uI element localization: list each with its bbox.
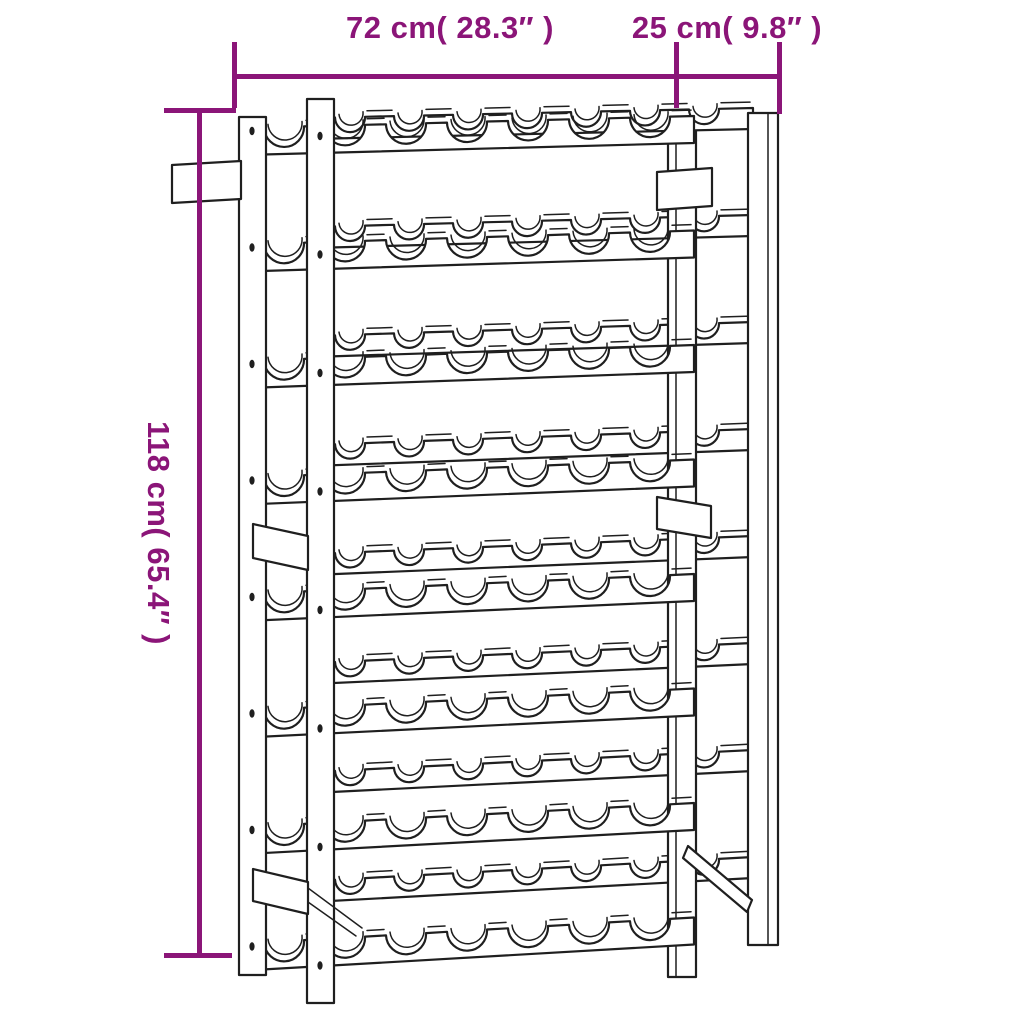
scallop-depth-line bbox=[268, 122, 302, 141]
rail-top-edge bbox=[367, 110, 392, 111]
rail-top-edge bbox=[544, 753, 569, 754]
screw-hole bbox=[317, 487, 322, 495]
rail-top-edge bbox=[550, 113, 567, 114]
rail-top-edge bbox=[550, 919, 567, 920]
scallop-depth-line bbox=[634, 570, 668, 589]
rail-top-edge bbox=[611, 227, 628, 228]
scallop-depth-line bbox=[575, 537, 599, 551]
scallop-depth-line bbox=[575, 322, 599, 335]
scallop-depth-line bbox=[575, 753, 599, 767]
scallop-depth-line bbox=[634, 685, 668, 704]
scallop-depth-line bbox=[268, 703, 302, 722]
scallop-depth-line bbox=[339, 329, 363, 342]
scallop-depth-line bbox=[573, 458, 607, 477]
scallop-depth-line bbox=[457, 650, 481, 664]
scallop-depth-line bbox=[575, 107, 599, 120]
rail-top-edge bbox=[367, 219, 392, 220]
rail-top-edge bbox=[603, 750, 628, 751]
scallop-depth-line bbox=[634, 799, 668, 818]
scallop-depth-line bbox=[634, 642, 658, 656]
scallop-depth-line bbox=[268, 935, 302, 954]
rail-top-edge bbox=[550, 459, 567, 460]
screw-hole bbox=[249, 476, 254, 484]
scallop-depth-line bbox=[516, 540, 540, 554]
rail-top-edge bbox=[603, 535, 628, 536]
scallop-depth-line bbox=[398, 653, 422, 667]
screw-hole bbox=[249, 360, 254, 368]
rail-top-edge bbox=[721, 530, 750, 531]
rail-top-edge bbox=[550, 229, 567, 230]
scallop-depth-line bbox=[634, 750, 658, 764]
rail-top-edge bbox=[367, 350, 384, 351]
scallop-depth-line bbox=[516, 432, 540, 446]
rail-top-edge bbox=[672, 225, 691, 226]
scallop-depth-line bbox=[339, 873, 363, 887]
scallop-depth-line bbox=[634, 213, 658, 226]
rail-top-edge bbox=[544, 322, 569, 323]
screw-hole bbox=[317, 606, 322, 614]
rail-top-edge bbox=[550, 804, 567, 805]
scallop-depth-line bbox=[634, 456, 668, 475]
scallop-depth-line bbox=[575, 860, 599, 874]
rail-top-edge bbox=[428, 348, 445, 349]
rail-top-edge bbox=[489, 346, 506, 347]
scallop-depth-line bbox=[339, 112, 363, 125]
rail-top-edge bbox=[485, 540, 510, 541]
rail-top-edge bbox=[367, 762, 392, 763]
width-dimension-label: 72 cm( 28.3″ ) bbox=[346, 10, 554, 46]
scallop-depth-line bbox=[457, 109, 481, 122]
rail-top-edge bbox=[485, 756, 510, 757]
scallop-depth-line bbox=[390, 928, 424, 947]
scallop-depth-line bbox=[398, 870, 422, 884]
scallop-depth-line bbox=[339, 765, 363, 779]
screw-hole bbox=[249, 593, 254, 601]
diagram-canvas: 72 cm( 28.3″ ) 25 cm( 9.8″ ) 118 cm( 65.… bbox=[0, 0, 1024, 1024]
side-support-bracket bbox=[172, 161, 241, 203]
rail-top-edge bbox=[544, 861, 569, 862]
rail-top-edge bbox=[367, 545, 392, 546]
rail-top-edge bbox=[489, 115, 506, 116]
scallop-depth-line bbox=[693, 104, 717, 117]
screw-hole bbox=[317, 369, 322, 377]
screw-hole bbox=[317, 724, 322, 732]
rail-top-edge bbox=[611, 571, 628, 572]
scallop-depth-line bbox=[390, 465, 424, 484]
scallop-depth-line bbox=[512, 921, 546, 940]
rail-top-edge bbox=[485, 324, 510, 325]
screw-hole bbox=[317, 843, 322, 851]
rail-top-edge bbox=[489, 230, 506, 231]
scallop-depth-line bbox=[457, 434, 481, 447]
scallop-depth-line bbox=[634, 427, 658, 441]
rail-top-edge bbox=[544, 214, 569, 215]
scallop-depth-line bbox=[516, 648, 540, 662]
rail-top-edge bbox=[721, 423, 750, 424]
rail-top-edge bbox=[721, 209, 750, 210]
scallop-depth-line bbox=[512, 460, 546, 479]
rail-top-edge bbox=[426, 867, 451, 868]
screw-hole bbox=[249, 942, 254, 950]
rail-top-edge bbox=[428, 232, 445, 233]
width-dimension-tick-middle bbox=[674, 42, 679, 108]
scallop-depth-line bbox=[516, 216, 540, 229]
rail-top-edge bbox=[426, 651, 451, 652]
scallop-depth-line bbox=[457, 542, 481, 556]
rail-top-edge bbox=[721, 744, 750, 746]
scallop-depth-line bbox=[516, 756, 540, 770]
rail-top-edge bbox=[426, 542, 451, 543]
rail-top-edge bbox=[672, 683, 691, 684]
rail-top-edge bbox=[367, 118, 384, 119]
rail-top-edge bbox=[721, 851, 750, 853]
scallop-depth-line bbox=[634, 914, 668, 933]
rail-top-edge bbox=[603, 643, 628, 644]
rail-top-edge bbox=[485, 648, 510, 649]
rail-top-edge bbox=[611, 456, 628, 457]
scallop-depth-line bbox=[339, 656, 363, 670]
rail-top-edge bbox=[426, 434, 451, 435]
scallop-depth-line bbox=[573, 573, 607, 592]
scallop-depth-line bbox=[457, 867, 481, 881]
rail-top-edge bbox=[367, 466, 384, 467]
rail-top-edge bbox=[428, 464, 445, 465]
scallop-depth-line bbox=[634, 857, 658, 871]
rail-top-edge bbox=[544, 538, 569, 539]
scallop-depth-line bbox=[512, 806, 546, 825]
screw-hole bbox=[249, 826, 254, 834]
rail-top-edge bbox=[485, 864, 510, 865]
rail-top-edge bbox=[672, 110, 691, 111]
rail-top-edge bbox=[426, 109, 451, 110]
scallop-depth-line bbox=[516, 324, 540, 337]
rail-top-edge bbox=[489, 692, 506, 693]
rail-top-edge bbox=[367, 328, 392, 329]
scallop-depth-line bbox=[268, 470, 302, 489]
scallop-depth-line bbox=[573, 688, 607, 707]
screw-hole bbox=[249, 709, 254, 717]
scallop-depth-line bbox=[451, 463, 485, 482]
scallop-depth-line bbox=[575, 645, 599, 659]
scallop-depth-line bbox=[398, 545, 422, 559]
scallop-depth-line bbox=[268, 819, 302, 838]
rail-top-edge bbox=[603, 428, 628, 429]
side-support-bracket bbox=[657, 497, 711, 538]
scallop-depth-line bbox=[573, 803, 607, 822]
screw-hole bbox=[249, 127, 254, 135]
scallop-depth-line bbox=[575, 214, 599, 227]
scallop-depth-line bbox=[575, 430, 599, 444]
rail-top-edge bbox=[367, 871, 392, 872]
scallop-depth-line bbox=[573, 918, 607, 937]
scallop-depth-line bbox=[457, 326, 481, 339]
rail-top-edge bbox=[721, 637, 750, 638]
scallop-depth-line bbox=[634, 105, 658, 118]
depth-dimension-label: 25 cm( 9.8″ ) bbox=[632, 10, 822, 46]
back-left-post bbox=[307, 99, 334, 1003]
scallop-depth-line bbox=[398, 111, 422, 124]
scallop-depth-line bbox=[268, 354, 302, 373]
scallop-depth-line bbox=[516, 108, 540, 121]
rail-top-edge bbox=[550, 574, 567, 575]
screw-hole bbox=[317, 132, 322, 140]
scallop-depth-line bbox=[512, 576, 546, 595]
rail-top-edge bbox=[367, 930, 384, 931]
width-dimension-line bbox=[234, 74, 780, 79]
rail-top-edge bbox=[428, 810, 445, 811]
rail-top-edge bbox=[426, 217, 451, 218]
scallop-depth-line bbox=[339, 438, 363, 452]
rail-top-edge bbox=[428, 926, 445, 927]
scallop-depth-line bbox=[398, 436, 422, 450]
screw-hole bbox=[249, 243, 254, 251]
rail-top-edge bbox=[485, 216, 510, 217]
rail-top-edge bbox=[367, 436, 392, 437]
rail-top-edge bbox=[550, 344, 567, 345]
rail-top-edge bbox=[672, 339, 691, 340]
rail-top-edge bbox=[485, 432, 510, 433]
rail-top-edge bbox=[611, 686, 628, 687]
scallop-depth-line bbox=[512, 691, 546, 710]
scallop-depth-line bbox=[268, 587, 302, 606]
scallop-depth-line bbox=[268, 238, 302, 257]
height-dimension-cap-bottom bbox=[164, 953, 232, 958]
back-right-post bbox=[748, 113, 778, 945]
rail-top-edge bbox=[550, 689, 567, 690]
rail-top-edge bbox=[428, 695, 445, 696]
scallop-depth-line bbox=[339, 547, 363, 561]
depth-dimension-tick-right bbox=[777, 42, 782, 114]
rail-top-edge bbox=[489, 807, 506, 808]
rail-top-edge bbox=[489, 922, 506, 923]
scallop-depth-line bbox=[457, 759, 481, 773]
rail-top-edge bbox=[611, 341, 628, 342]
rail-top-edge bbox=[603, 212, 628, 213]
rail-top-edge bbox=[485, 108, 510, 109]
scallop-depth-line bbox=[390, 581, 424, 600]
rail-top-edge bbox=[426, 326, 451, 327]
screw-hole bbox=[317, 250, 322, 258]
rail-top-edge bbox=[603, 320, 628, 321]
rail-top-edge bbox=[672, 454, 691, 455]
scallop-depth-line bbox=[451, 809, 485, 828]
scallop-depth-line bbox=[451, 694, 485, 713]
scallop-depth-line bbox=[390, 813, 424, 832]
scallop-depth-line bbox=[339, 221, 363, 234]
rail-top-edge bbox=[367, 698, 384, 699]
rail-top-edge bbox=[672, 797, 691, 798]
scallop-depth-line bbox=[398, 328, 422, 341]
rail-top-edge bbox=[367, 234, 384, 235]
scallop-depth-line bbox=[398, 762, 422, 776]
side-support-bracket bbox=[657, 168, 712, 210]
rail-top-edge bbox=[672, 568, 691, 569]
height-dimension-cap-top bbox=[164, 108, 236, 113]
width-dimension-tick-left bbox=[232, 42, 237, 108]
rail-top-edge bbox=[367, 814, 384, 815]
rail-top-edge bbox=[721, 102, 750, 103]
scallop-depth-line bbox=[451, 578, 485, 597]
scallop-depth-line bbox=[634, 320, 658, 333]
rail-top-edge bbox=[428, 579, 445, 580]
rail-top-edge bbox=[367, 653, 392, 654]
scallop-depth-line bbox=[451, 925, 485, 944]
rail-top-edge bbox=[544, 645, 569, 646]
scallop-depth-line bbox=[634, 535, 658, 549]
rail-top-edge bbox=[603, 105, 628, 106]
rail-top-edge bbox=[611, 801, 628, 802]
scallop-depth-line bbox=[457, 217, 481, 230]
height-dimension-label: 118 cm( 65.4″ ) bbox=[140, 421, 176, 645]
height-dimension-line bbox=[197, 110, 202, 957]
rail-top-edge bbox=[489, 461, 506, 462]
rail-top-edge bbox=[489, 576, 506, 577]
rail-top-edge bbox=[603, 858, 628, 859]
rail-top-edge bbox=[611, 915, 628, 916]
scallop-depth-line bbox=[398, 219, 422, 232]
rail-top-edge bbox=[721, 316, 750, 317]
scallop-depth-line bbox=[390, 697, 424, 716]
scallop-depth-line bbox=[516, 864, 540, 878]
rail-top-edge bbox=[426, 759, 451, 760]
rail-top-edge bbox=[544, 106, 569, 107]
rail-top-edge bbox=[544, 430, 569, 431]
rail-top-edge bbox=[367, 582, 384, 583]
screw-hole bbox=[317, 961, 322, 969]
